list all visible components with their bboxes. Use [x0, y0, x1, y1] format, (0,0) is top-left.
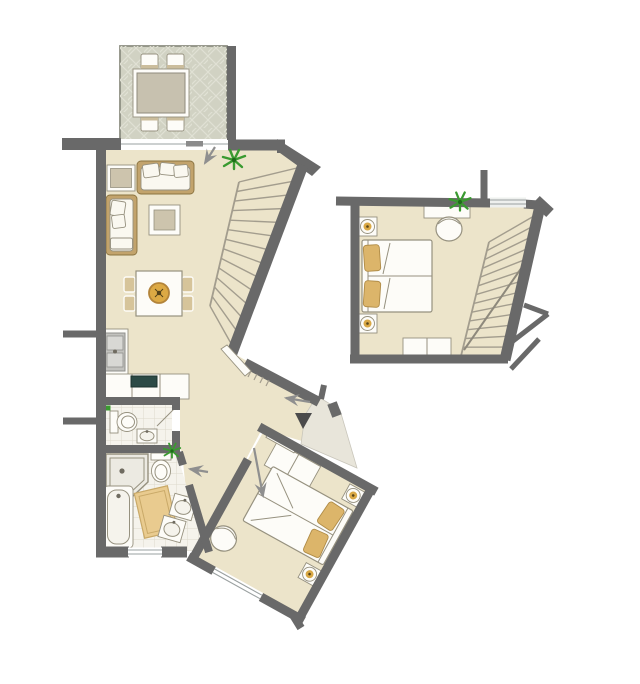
terrace-wall-strip — [227, 46, 236, 140]
bathroom-window — [128, 548, 162, 557]
nightstand — [358, 217, 377, 236]
bedroom-upper-window — [490, 198, 526, 208]
bathtub-faucet — [116, 494, 120, 498]
sofa — [137, 161, 194, 194]
nightstand — [358, 314, 377, 333]
terrace-chair — [167, 54, 184, 70]
dining-chair — [182, 277, 193, 292]
wall-end-block — [332, 403, 337, 416]
floor-plan-drawing: Apartment floor plan with terrace, open … — [0, 0, 640, 684]
toilet — [110, 411, 137, 433]
kitchen-faucet — [113, 350, 117, 354]
hand-basin — [137, 429, 157, 443]
terrace-sliding-door — [121, 139, 228, 150]
double-bed — [362, 240, 432, 312]
sliding-door-handle — [186, 141, 203, 147]
floor-plan-page: Apartment floor plan with terrace, open … — [0, 0, 640, 684]
chaise-longue — [106, 195, 137, 255]
terrace-chair — [141, 116, 158, 131]
cooktop — [131, 376, 157, 387]
terrace-chair — [141, 54, 158, 70]
dining-chair — [182, 296, 193, 311]
desk-chair — [436, 217, 462, 241]
terrace-dining-table — [133, 69, 189, 117]
bathtub — [104, 486, 133, 548]
bathroom-toilet — [151, 453, 171, 482]
door-jamb — [321, 385, 324, 399]
pillow — [363, 244, 381, 271]
bathroom-door-jamb — [179, 452, 183, 465]
shower-drain — [119, 468, 124, 473]
terrace-chair — [167, 116, 184, 131]
side-table — [107, 165, 135, 191]
dining-chair — [124, 296, 135, 311]
coffee-table — [149, 205, 180, 235]
dining-chair — [124, 277, 135, 292]
pillow — [363, 280, 381, 307]
